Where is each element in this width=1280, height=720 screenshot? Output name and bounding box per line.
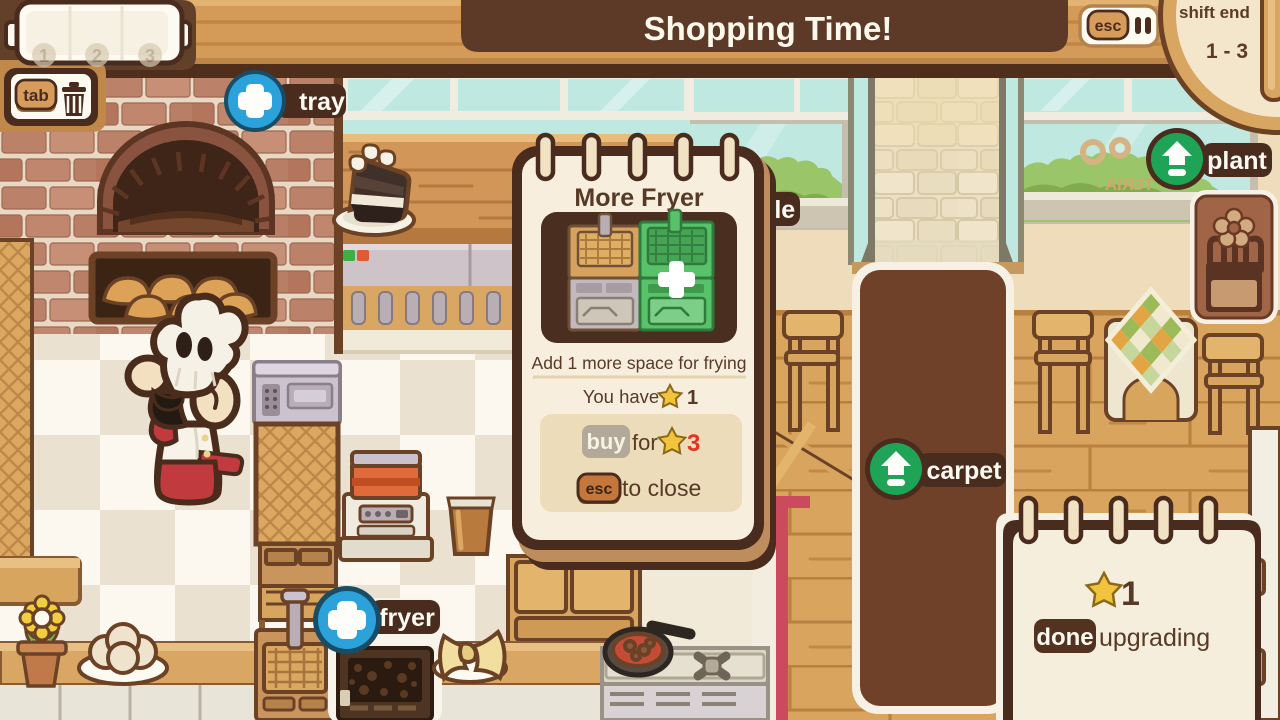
svg-text:carpet: carpet xyxy=(926,457,1002,485)
svg-text:2: 2 xyxy=(92,46,102,66)
svg-text:to close: to close xyxy=(622,475,701,501)
svg-text:esc: esc xyxy=(586,481,613,498)
svg-text:1: 1 xyxy=(1121,575,1140,613)
svg-text:shift end: shift end xyxy=(1179,3,1250,22)
svg-text:Add 1 more space for frying: Add 1 more space for frying xyxy=(532,353,747,373)
svg-text:upgrading: upgrading xyxy=(1099,624,1210,652)
svg-text:Shopping Time!: Shopping Time! xyxy=(644,10,893,47)
svg-text:fryer: fryer xyxy=(379,604,435,632)
svg-text:3: 3 xyxy=(687,430,700,457)
svg-text:tray: tray xyxy=(299,88,345,116)
svg-text:3: 3 xyxy=(145,46,155,66)
svg-text:More Fryer: More Fryer xyxy=(574,184,703,212)
svg-text:1: 1 xyxy=(39,46,49,66)
svg-text:esc: esc xyxy=(1095,18,1122,35)
svg-text:done: done xyxy=(1036,624,1093,651)
svg-text:1 - 3: 1 - 3 xyxy=(1206,40,1248,63)
svg-text:1: 1 xyxy=(687,387,698,409)
svg-text:for: for xyxy=(632,430,658,455)
svg-text:buy: buy xyxy=(586,429,626,454)
svg-text:tab: tab xyxy=(23,86,49,105)
svg-text:plant: plant xyxy=(1207,147,1267,175)
svg-text:- AIЯ3T: - AIЯ3T xyxy=(1095,175,1154,194)
svg-text:You have: You have xyxy=(583,386,659,407)
